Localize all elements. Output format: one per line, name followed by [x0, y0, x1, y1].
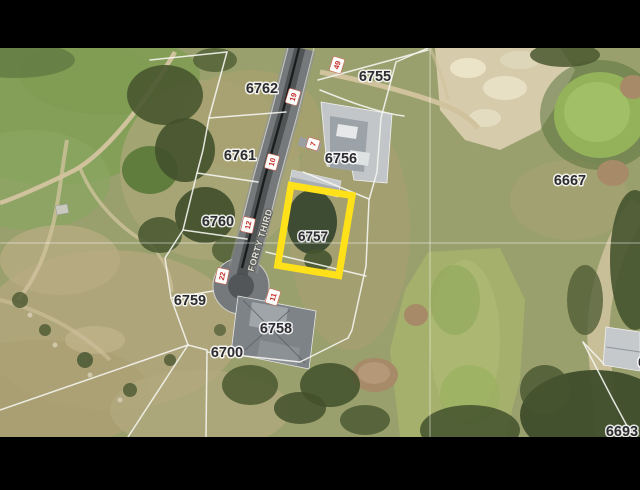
parcel-label-6758: 6758 [260, 321, 292, 337]
letterbox-top [0, 0, 640, 48]
sand-bunker [404, 304, 428, 326]
aerial-imagery: FORTY THIRD 49 19 7 10 12 [0, 35, 640, 460]
lot-6757-vegetation [287, 190, 337, 254]
parcel-label-6759: 6759 [174, 293, 206, 309]
parcel-label-6756: 6756 [325, 151, 357, 167]
parcel-label-6757-highlighted: 6757 [298, 229, 328, 244]
map-canvas[interactable]: FORTY THIRD 49 19 7 10 12 [0, 0, 640, 490]
map-screenshot: FORTY THIRD 49 19 7 10 12 [0, 0, 640, 490]
parcel-label-6700: 6700 [211, 345, 243, 361]
parcel-label-6760: 6760 [202, 214, 234, 230]
letterbox-bottom [0, 437, 640, 490]
parcel-label-6761: 6761 [224, 148, 256, 164]
small-structure [55, 204, 68, 215]
parcel-label-6667: 6667 [554, 173, 586, 189]
sand-bunker [597, 160, 629, 186]
parcel-label-6755: 6755 [359, 69, 391, 85]
parcel-label-6762: 6762 [246, 81, 278, 97]
